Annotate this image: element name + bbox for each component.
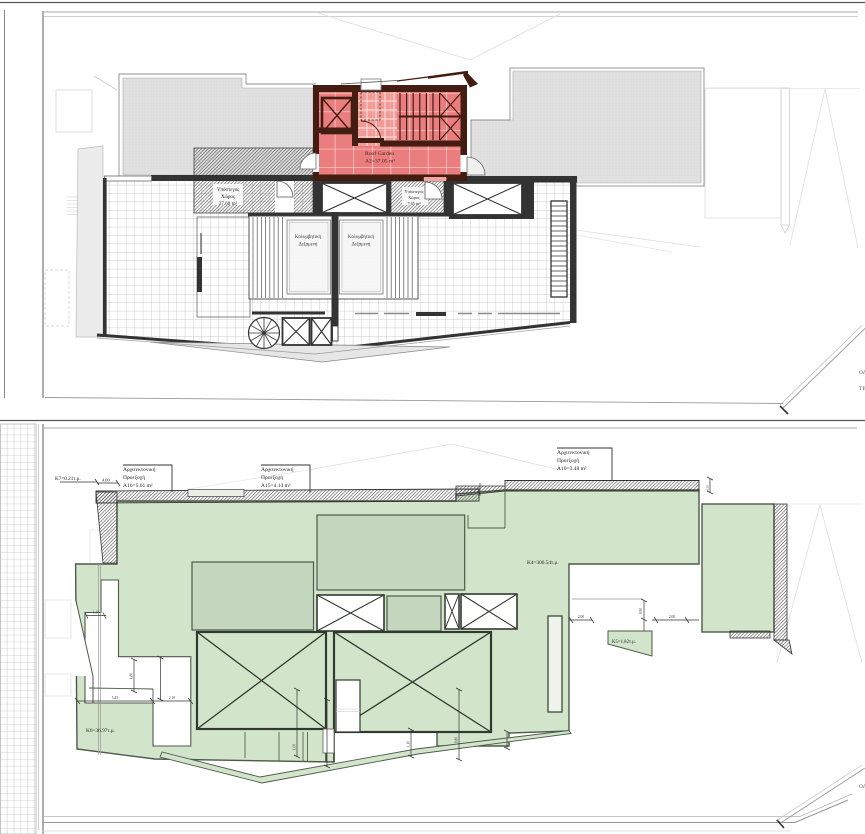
svg-text:Χώρος: Χώρος — [221, 194, 235, 200]
svg-text:Roof Garden: Roof Garden — [365, 150, 394, 157]
svg-text:A16=5.61 m²: A16=5.61 m² — [123, 483, 153, 489]
svg-text:4.00: 4.00 — [102, 478, 110, 483]
svg-text:Προεξοχή: Προεξοχή — [123, 475, 145, 481]
svg-text:2.00: 2.00 — [669, 615, 675, 619]
svg-text:Αρχιτεκτονική: Αρχιτεκτονική — [261, 467, 294, 473]
svg-text:ΟΔΟΣ: ΟΔΟΣ — [859, 784, 865, 790]
svg-text:A10=3.48 m²: A10=3.48 m² — [557, 466, 587, 472]
svg-text:Δεξαμενή: Δεξαμενή — [352, 243, 371, 248]
svg-text:1.10: 1.10 — [93, 611, 99, 615]
svg-text:0.20: 0.20 — [706, 485, 710, 491]
svg-text:Αρχιτεκτονική: Αρχιτεκτονική — [557, 450, 590, 456]
svg-text:Προεξοχή: Προεξοχή — [557, 458, 579, 464]
svg-text:Κολυμβητική: Κολυμβητική — [348, 235, 375, 240]
svg-text:A15=4.14 m²: A15=4.14 m² — [261, 483, 291, 489]
svg-text:1.80: 1.80 — [130, 673, 134, 679]
svg-text:Αρχιτεκτονική: Αρχιτεκτονική — [123, 467, 156, 473]
svg-text:7.65 m²: 7.65 m² — [407, 201, 421, 206]
svg-text:1.10: 1.10 — [407, 741, 411, 747]
svg-text:K4=306.54τ.μ.: K4=306.54τ.μ. — [527, 560, 559, 566]
svg-text:5.45: 5.45 — [112, 696, 118, 700]
svg-text:1.00: 1.00 — [293, 744, 297, 750]
svg-text:0.80: 0.80 — [455, 737, 459, 743]
svg-text:27.60 m²: 27.60 m² — [219, 201, 238, 207]
svg-text:K7=0.21τ.μ.: K7=0.21τ.μ. — [55, 476, 81, 482]
svg-text:K6=36.97τ.μ.: K6=36.97τ.μ. — [86, 728, 115, 734]
svg-text:Υπόστεγος: Υπόστεγος — [404, 189, 423, 194]
svg-text:Χώρος: Χώρος — [408, 195, 420, 200]
svg-text:2.10: 2.10 — [169, 696, 175, 700]
svg-text:0.90: 0.90 — [639, 608, 643, 614]
svg-text:Κολυμβητική: Κολυμβητική — [295, 235, 322, 240]
svg-text:A2=37.05 m²: A2=37.05 m² — [365, 159, 395, 165]
svg-text:ΤΕΛ: ΤΕΛ — [859, 386, 865, 392]
svg-text:Υπόστεγος: Υπόστεγος — [217, 187, 240, 193]
svg-text:K5=1.82τ.μ.: K5=1.82τ.μ. — [612, 640, 636, 645]
svg-text:Προεξοχή: Προεξοχή — [261, 475, 283, 481]
svg-text:Δεξαμενή: Δεξαμενή — [299, 243, 318, 248]
svg-text:ΟΔΟΣ: ΟΔΟΣ — [859, 370, 865, 376]
svg-text:2.00: 2.00 — [578, 615, 584, 619]
svg-text:0.76: 0.76 — [476, 487, 480, 493]
